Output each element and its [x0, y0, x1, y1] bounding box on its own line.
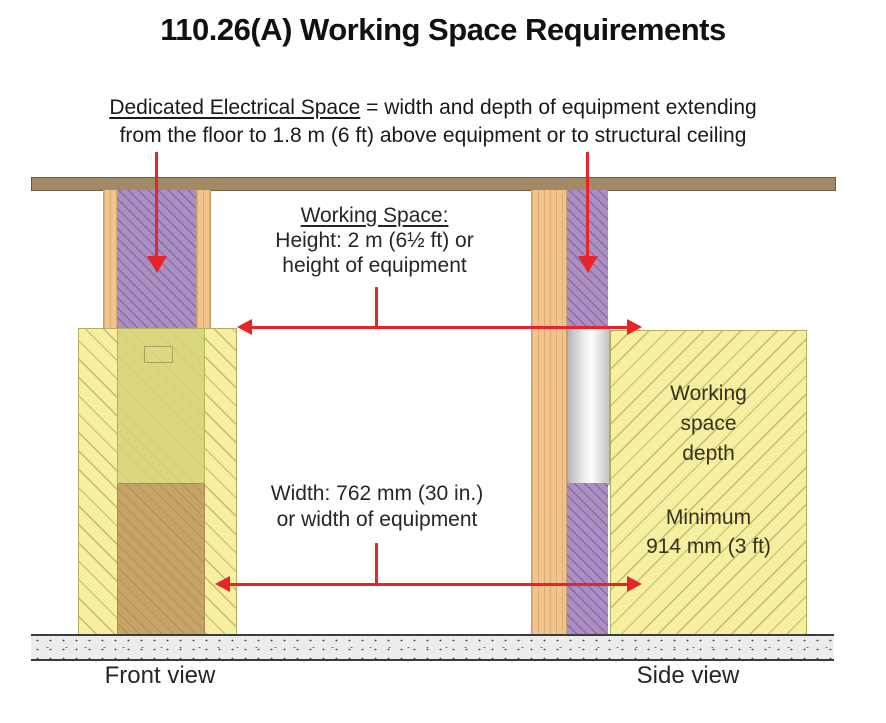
arrow-shaft	[249, 326, 630, 329]
front-view-equipment-base	[117, 483, 205, 637]
arrowhead-left-icon	[237, 319, 252, 335]
working-space-label: Working Space: Height: 2 m (6½ ft) or he…	[272, 203, 477, 278]
front-view-right-stud	[196, 190, 211, 328]
working-space-depth-label: Working space depth	[611, 379, 806, 469]
arrowhead-right-icon	[627, 576, 642, 592]
arrow-shaft	[227, 583, 630, 586]
definition-line1-rest: = width and depth of equipment extending	[360, 96, 756, 119]
side-view-equipment	[567, 328, 610, 485]
minimum-depth-label: Minimum 914 mm (3 ft)	[611, 503, 806, 561]
definition-line1: Dedicated Electrical Space = width and d…	[33, 94, 833, 122]
depth-label-line3: depth	[611, 439, 806, 469]
dedicated-space-pointer-line-side	[586, 152, 589, 257]
width-label-line2: or width of equipment	[252, 507, 502, 533]
working-space-dimension-arrow	[237, 318, 642, 337]
arrowhead-right-icon	[627, 319, 642, 335]
side-view-wall	[531, 190, 567, 635]
dedicated-space-pointer-line-front	[155, 152, 158, 257]
working-space-height-line2: height of equipment	[272, 253, 477, 278]
width-label-line1: Width: 762 mm (30 in.)	[252, 481, 502, 507]
arrowhead-left-icon	[215, 576, 230, 592]
minimum-label-line1: Minimum	[611, 503, 806, 532]
front-view-equipment-panel	[117, 328, 205, 485]
width-dimension-arrow	[215, 575, 642, 594]
minimum-label-line2: 914 mm (3 ft)	[611, 532, 806, 561]
dedicated-space-arrowhead-side-icon	[578, 256, 598, 273]
front-view-caption: Front view	[85, 662, 235, 690]
definition-text: Dedicated Electrical Space = width and d…	[33, 94, 833, 150]
width-label: Width: 762 mm (30 in.) or width of equip…	[252, 481, 502, 533]
definition-term: Dedicated Electrical Space	[109, 96, 360, 119]
working-space-heading: Working Space:	[272, 203, 477, 228]
side-view-dedicated-space-below	[567, 483, 608, 635]
structural-ceiling	[31, 177, 836, 191]
page-title: 110.26(A) Working Space Requirements	[0, 12, 886, 48]
equipment-nameplate	[144, 346, 173, 363]
definition-line2: from the floor to 1.8 m (6 ft) above equ…	[33, 122, 833, 150]
working-space-height-line: Height: 2 m (6½ ft) or	[272, 228, 477, 253]
side-view-caption: Side view	[613, 662, 763, 690]
depth-label-line1: Working	[611, 379, 806, 409]
floor	[31, 634, 834, 661]
dedicated-space-arrowhead-front-icon	[147, 256, 167, 273]
depth-label-line2: space	[611, 409, 806, 439]
